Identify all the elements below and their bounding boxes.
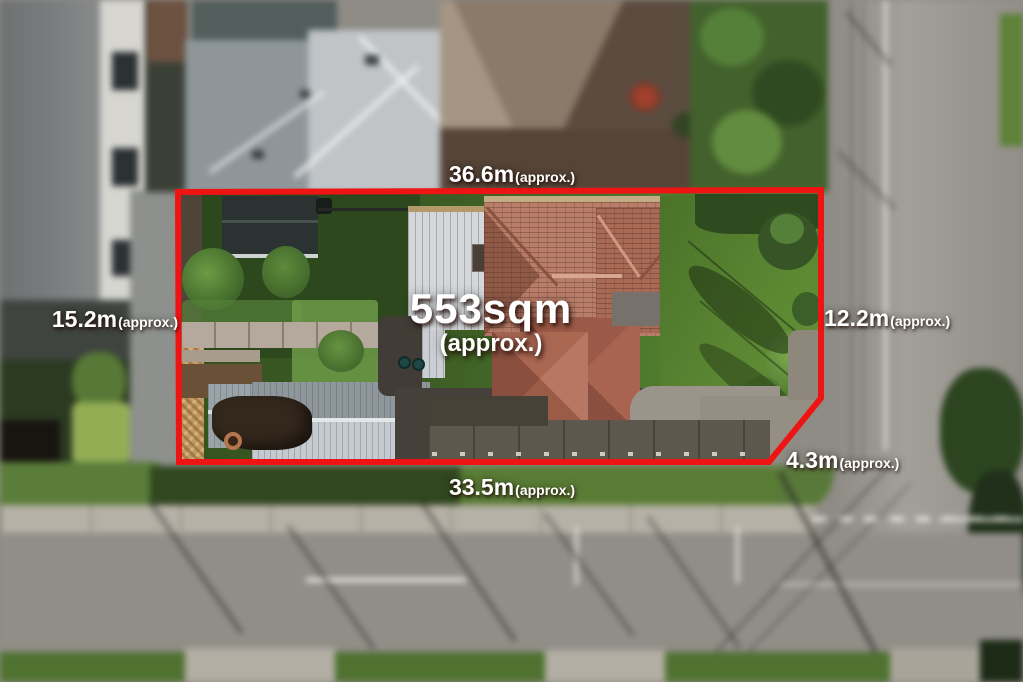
measurement-approx: (approx.) xyxy=(890,313,950,329)
measurement-value: 33.5m xyxy=(449,474,514,500)
measurement-label-top: 36.6m(approx.) xyxy=(392,161,632,188)
measurement-value: 12.2m xyxy=(824,305,889,331)
measurement-value: 36.6m xyxy=(449,161,514,187)
measurement-value: 15.2m xyxy=(52,306,117,332)
measurement-label-left: 15.2m(approx.) xyxy=(28,306,178,333)
measurement-approx: (approx.) xyxy=(515,169,575,185)
area-value: 553sqm xyxy=(370,288,612,330)
measurement-value: 4.3m xyxy=(786,447,838,473)
measurement-approx: (approx.) xyxy=(515,482,575,498)
measurement-label-bottom-right: 4.3m(approx.) xyxy=(786,447,899,474)
measurement-approx: (approx.) xyxy=(839,455,899,471)
area-approx: (approx.) xyxy=(370,330,612,358)
measurement-label-right: 12.2m(approx.) xyxy=(824,305,950,332)
aerial-property-photo: 36.6m(approx.) 15.2m(approx.) 12.2m(appr… xyxy=(0,0,1023,682)
area-label: 553sqm (approx.) xyxy=(370,288,612,358)
measurement-approx: (approx.) xyxy=(118,314,178,330)
measurement-label-bottom: 33.5m(approx.) xyxy=(392,474,632,501)
